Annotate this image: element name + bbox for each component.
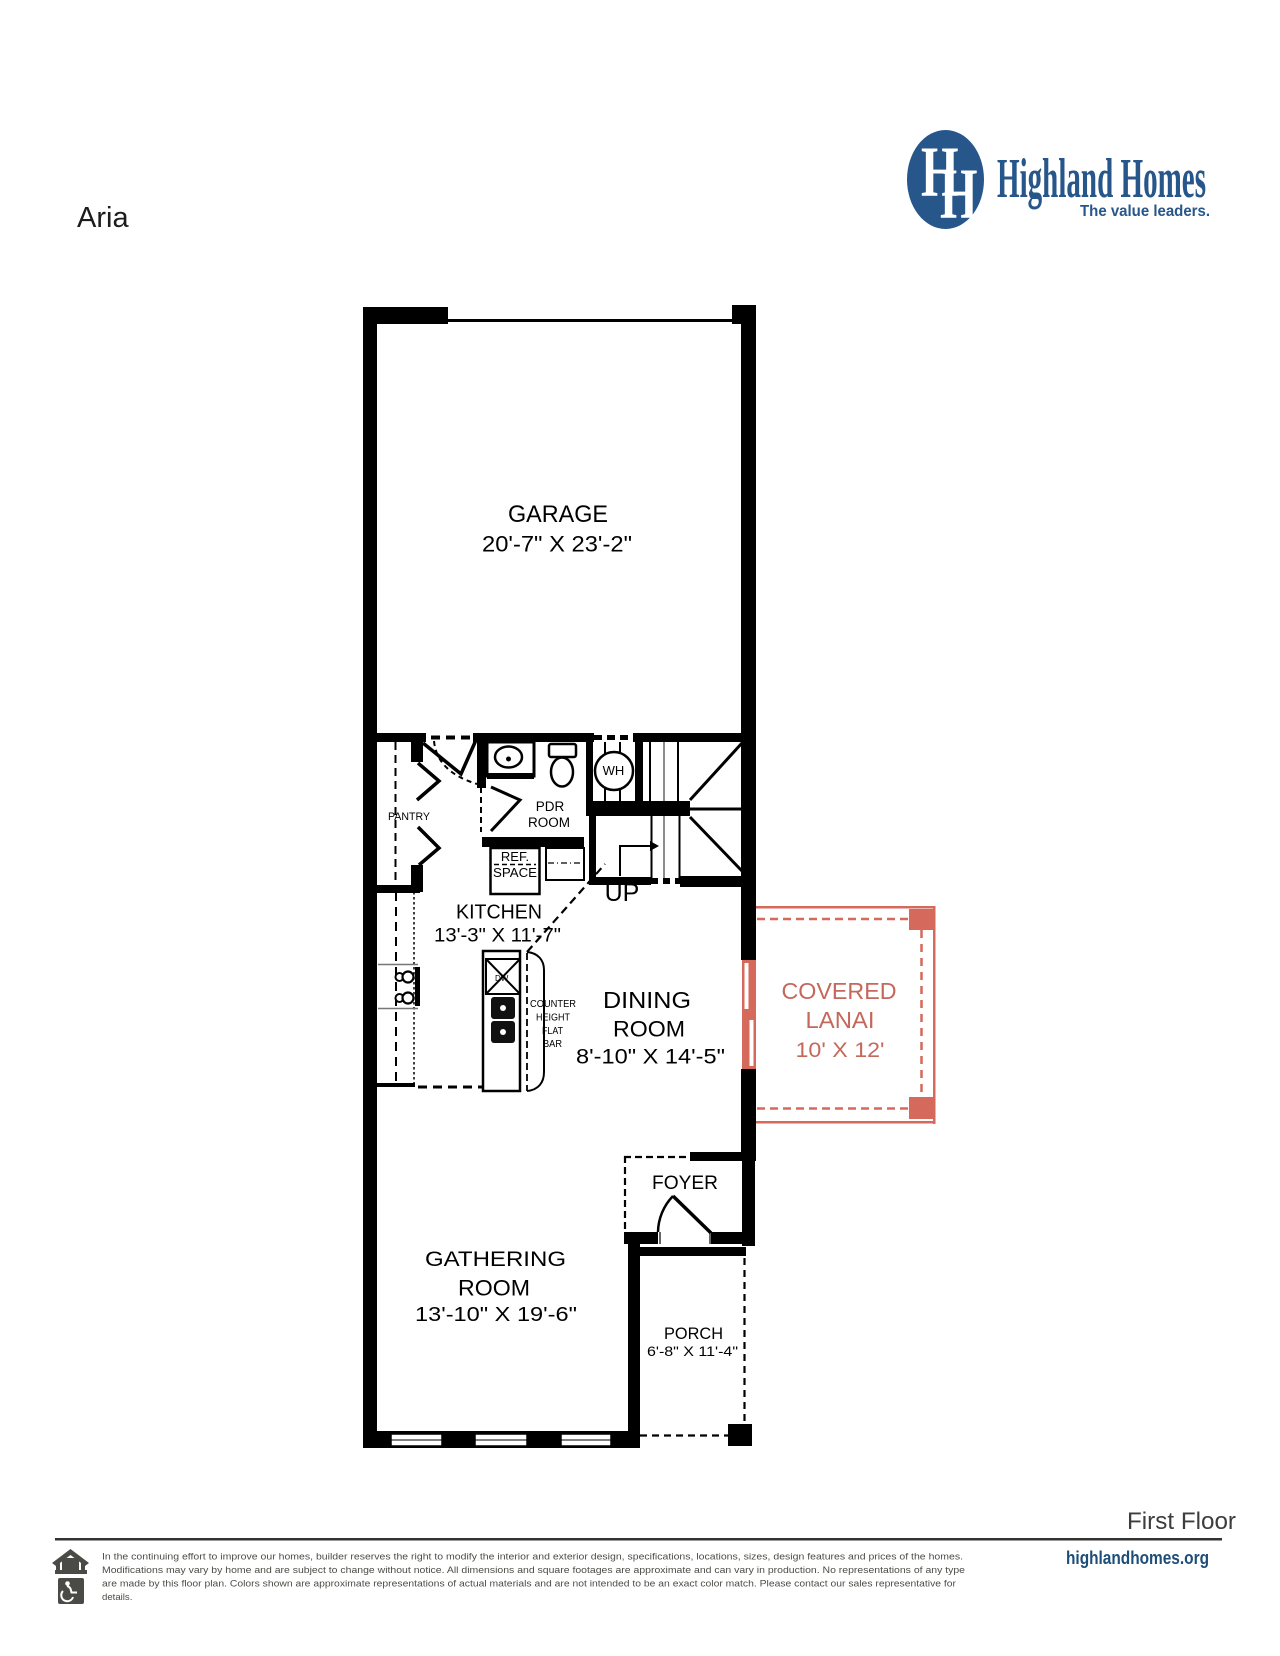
svg-text:Highland Homes: Highland Homes — [997, 148, 1206, 210]
svg-text:In the continuing effort to im: In the continuing effort to improve our … — [102, 1552, 963, 1563]
svg-text:DW: DW — [495, 974, 509, 983]
svg-text:FLAT: FLAT — [542, 1025, 563, 1037]
svg-text:13'-10" X 19'-6": 13'-10" X 19'-6" — [415, 1303, 577, 1326]
svg-text:PDR: PDR — [536, 799, 565, 814]
svg-text:20'-7" X 23'-2": 20'-7" X 23'-2" — [482, 532, 632, 557]
svg-text:REF.: REF. — [501, 849, 529, 864]
svg-text:Aria: Aria — [77, 202, 129, 234]
svg-text:PORCH: PORCH — [664, 1324, 723, 1343]
svg-text:details.: details. — [102, 1592, 132, 1603]
svg-text:6'-8" X 11'-4": 6'-8" X 11'-4" — [647, 1343, 738, 1359]
svg-text:Modifications may vary by home: Modifications may vary by home and are s… — [102, 1565, 965, 1576]
svg-text:HEIGHT: HEIGHT — [536, 1012, 570, 1024]
svg-text:SPACE: SPACE — [493, 865, 537, 880]
svg-text:First Floor: First Floor — [1127, 1508, 1236, 1535]
svg-text:ROOM: ROOM — [528, 815, 570, 830]
svg-text:H: H — [940, 155, 978, 235]
svg-text:8'-10" X 14'-5": 8'-10" X 14'-5" — [576, 1046, 725, 1069]
svg-text:GATHERING: GATHERING — [425, 1247, 566, 1271]
svg-text:COUNTER: COUNTER — [530, 998, 576, 1010]
svg-text:UP: UP — [605, 879, 640, 907]
svg-text:ROOM: ROOM — [458, 1276, 530, 1301]
svg-text:are made by this floor plan. C: are made by this floor plan. Colors show… — [102, 1579, 957, 1590]
svg-text:ROOM: ROOM — [613, 1017, 685, 1042]
svg-text:highlandhomes.org: highlandhomes.org — [1066, 1548, 1209, 1568]
svg-text:BAR: BAR — [543, 1038, 562, 1050]
svg-text:FOYER: FOYER — [652, 1172, 718, 1194]
svg-text:KITCHEN: KITCHEN — [456, 901, 542, 924]
svg-text:10' X 12': 10' X 12' — [796, 1039, 885, 1062]
svg-text:DINING: DINING — [603, 987, 691, 1013]
svg-text:LANAI: LANAI — [806, 1007, 875, 1033]
svg-text:WH: WH — [603, 763, 625, 778]
svg-text:13'-3" X 11'-7": 13'-3" X 11'-7" — [434, 925, 561, 947]
svg-text:COVERED: COVERED — [782, 978, 897, 1004]
svg-text:PANTRY: PANTRY — [388, 811, 431, 823]
svg-text:The value leaders.: The value leaders. — [1080, 203, 1210, 220]
svg-text:GARAGE: GARAGE — [508, 501, 608, 528]
